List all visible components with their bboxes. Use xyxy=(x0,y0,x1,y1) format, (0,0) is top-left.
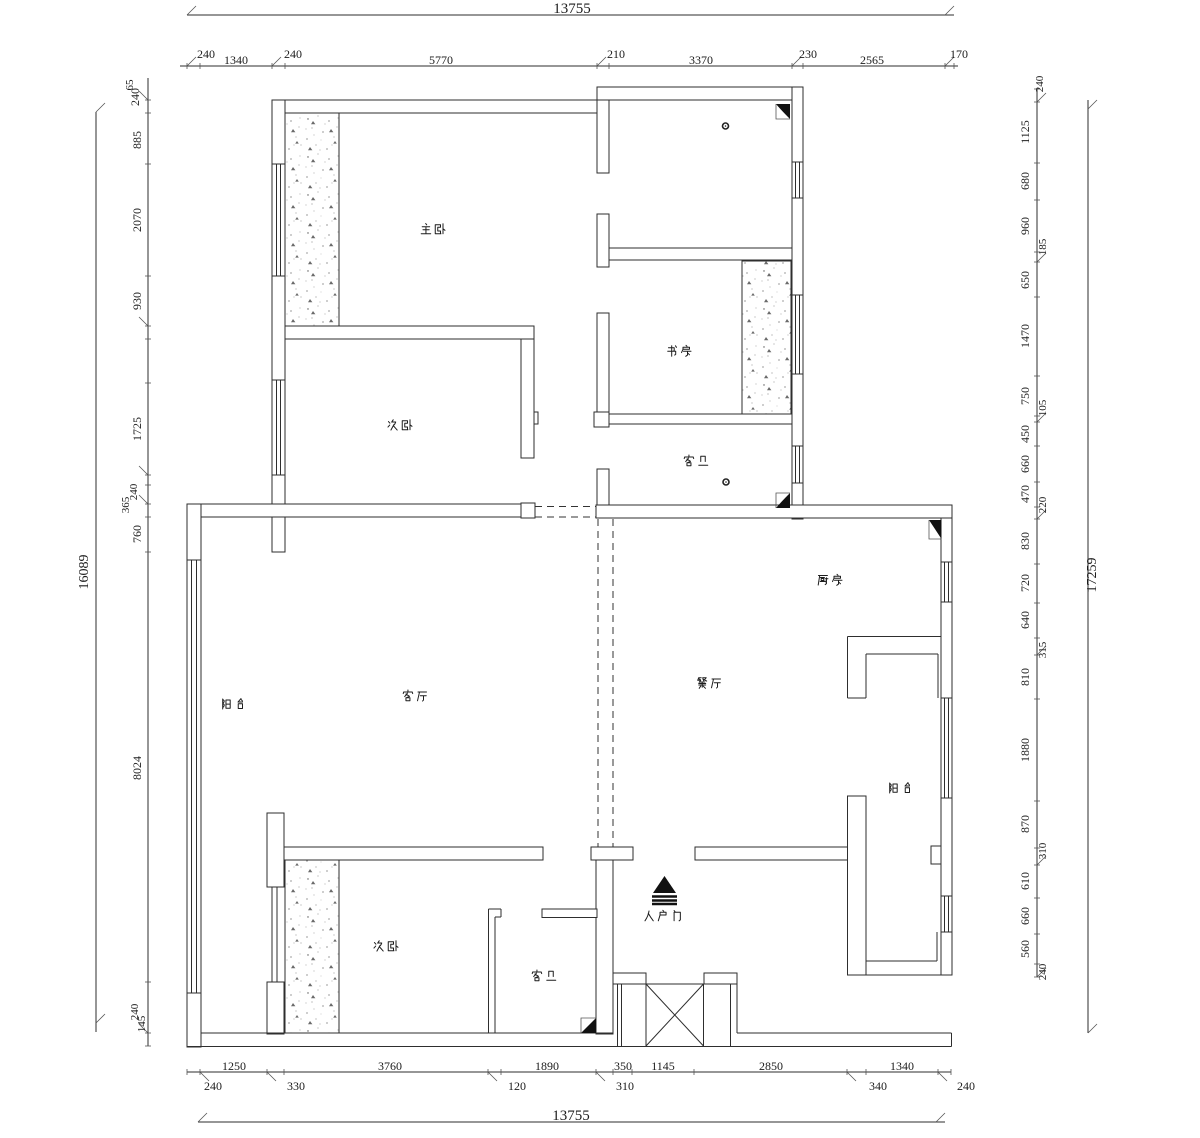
svg-text:315: 315 xyxy=(1037,641,1049,658)
svg-text:2070: 2070 xyxy=(130,208,144,232)
svg-text:240: 240 xyxy=(1034,75,1046,92)
svg-text:310: 310 xyxy=(616,1079,634,1093)
svg-text:5770: 5770 xyxy=(429,53,453,67)
svg-text:8024: 8024 xyxy=(130,756,144,780)
svg-text:560: 560 xyxy=(1018,940,1032,958)
svg-text:350: 350 xyxy=(614,1059,632,1073)
svg-text:1340: 1340 xyxy=(224,53,248,67)
svg-text:220: 220 xyxy=(1037,496,1049,513)
svg-text:65: 65 xyxy=(124,79,136,91)
svg-text:720: 720 xyxy=(1018,574,1032,592)
svg-text:885: 885 xyxy=(130,131,144,149)
svg-text:1470: 1470 xyxy=(1018,324,1032,348)
svg-text:210: 210 xyxy=(607,47,625,61)
svg-text:810: 810 xyxy=(1018,668,1032,686)
svg-text:310: 310 xyxy=(1037,842,1049,859)
svg-text:1880: 1880 xyxy=(1018,738,1032,762)
svg-text:830: 830 xyxy=(1018,532,1032,550)
svg-text:1145: 1145 xyxy=(651,1059,675,1073)
svg-text:760: 760 xyxy=(130,525,144,543)
svg-text:470: 470 xyxy=(1018,485,1032,503)
svg-text:240: 240 xyxy=(204,1079,222,1093)
svg-text:1340: 1340 xyxy=(890,1059,914,1073)
svg-text:17259: 17259 xyxy=(1085,558,1100,593)
svg-text:680: 680 xyxy=(1018,172,1032,190)
svg-text:1890: 1890 xyxy=(535,1059,559,1073)
svg-text:2850: 2850 xyxy=(759,1059,783,1073)
svg-text:365: 365 xyxy=(120,496,132,513)
svg-text:610: 610 xyxy=(1018,872,1032,890)
svg-text:340: 340 xyxy=(869,1079,887,1093)
svg-text:650: 650 xyxy=(1018,271,1032,289)
svg-text:145: 145 xyxy=(136,1015,148,1032)
svg-text:3370: 3370 xyxy=(689,53,713,67)
svg-text:870: 870 xyxy=(1018,815,1032,833)
svg-text:3760: 3760 xyxy=(378,1059,402,1073)
svg-text:2565: 2565 xyxy=(860,53,884,67)
svg-text:640: 640 xyxy=(1018,611,1032,629)
svg-text:16089: 16089 xyxy=(77,555,92,590)
svg-text:1125: 1125 xyxy=(1018,120,1032,144)
svg-text:660: 660 xyxy=(1018,455,1032,473)
svg-text:660: 660 xyxy=(1018,907,1032,925)
svg-text:240: 240 xyxy=(1037,963,1049,980)
svg-text:170: 170 xyxy=(950,47,968,61)
svg-text:13755: 13755 xyxy=(552,1108,590,1124)
svg-text:240: 240 xyxy=(197,47,215,61)
svg-text:240: 240 xyxy=(284,47,302,61)
svg-text:120: 120 xyxy=(508,1079,526,1093)
svg-text:185: 185 xyxy=(1037,238,1049,255)
svg-text:960: 960 xyxy=(1018,217,1032,235)
svg-text:105: 105 xyxy=(1037,399,1049,416)
svg-text:450: 450 xyxy=(1018,425,1032,443)
svg-text:1725: 1725 xyxy=(130,417,144,441)
svg-text:240: 240 xyxy=(957,1079,975,1093)
svg-text:750: 750 xyxy=(1018,387,1032,405)
svg-text:13755: 13755 xyxy=(553,1,591,17)
svg-text:930: 930 xyxy=(130,292,144,310)
svg-text:230: 230 xyxy=(799,47,817,61)
svg-text:1250: 1250 xyxy=(222,1059,246,1073)
svg-text:330: 330 xyxy=(287,1079,305,1093)
